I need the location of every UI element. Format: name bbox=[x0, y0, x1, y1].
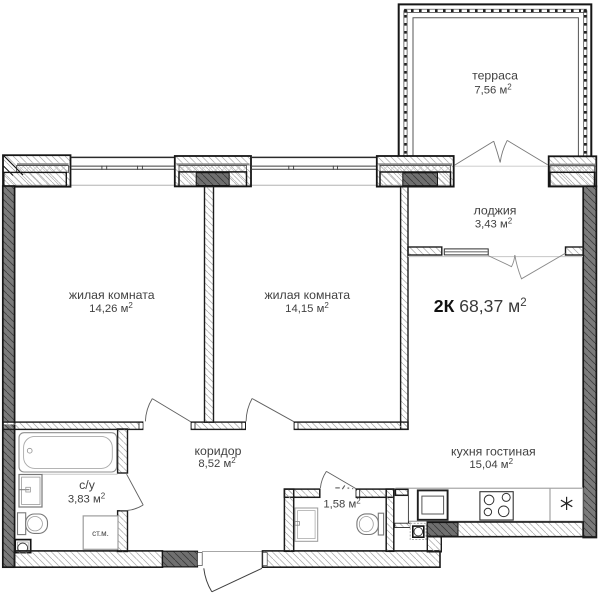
svg-text:жилая комната: жилая комната bbox=[69, 288, 155, 302]
svg-text:3,83 м2: 3,83 м2 bbox=[68, 492, 106, 506]
svg-text:1,58 м2: 1,58 м2 bbox=[323, 497, 361, 511]
svg-text:кухня гостиная: кухня гостиная bbox=[451, 445, 536, 459]
svg-text:8,52 м2: 8,52 м2 bbox=[198, 456, 236, 470]
svg-text:с/у: с/у bbox=[79, 478, 96, 492]
svg-text:2К 68,37 м2: 2К 68,37 м2 bbox=[434, 296, 527, 316]
svg-text:14,26 м2: 14,26 м2 bbox=[89, 301, 133, 315]
svg-text:3,43 м2: 3,43 м2 bbox=[475, 217, 513, 231]
svg-text:жилая комната: жилая комната bbox=[264, 288, 350, 302]
svg-text:15,04 м2: 15,04 м2 bbox=[469, 457, 513, 471]
svg-text:ст.м.: ст.м. bbox=[92, 529, 109, 538]
svg-text:7,56 м2: 7,56 м2 bbox=[474, 82, 512, 96]
svg-text:лоджия: лоджия bbox=[474, 203, 517, 217]
svg-text:терраса: терраса bbox=[472, 69, 518, 83]
svg-text:14,15 м2: 14,15 м2 bbox=[285, 301, 329, 315]
